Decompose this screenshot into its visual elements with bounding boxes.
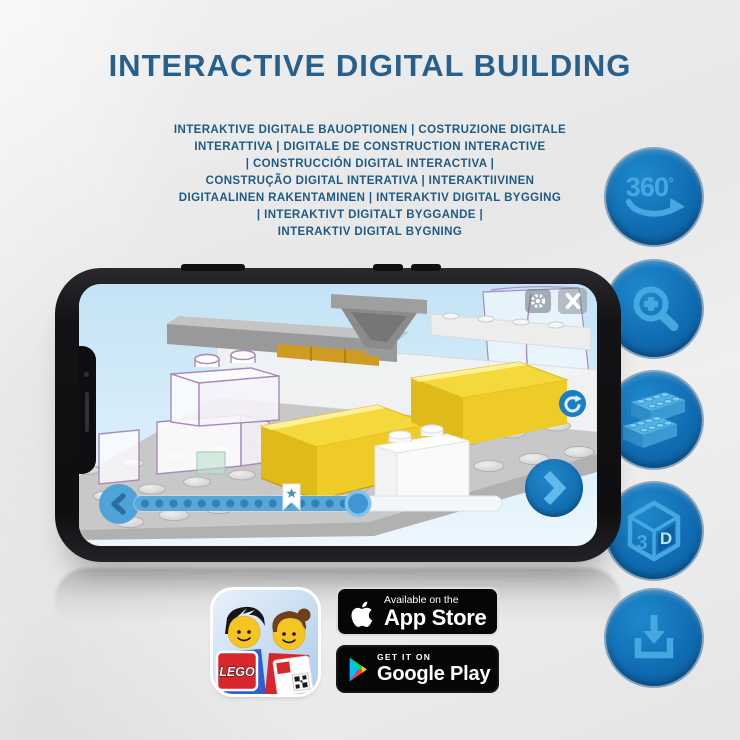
rotate-refresh-icon (562, 393, 583, 414)
phone-volume-down-button (411, 264, 441, 271)
google-play-tagline: GET IT ON (377, 652, 490, 663)
app-store-badge[interactable]: Available on the App Store (336, 587, 499, 636)
google-play-badge[interactable]: GET IT ON Google Play (336, 645, 499, 693)
page-title: INTERACTIVE DIGITAL BUILDING (0, 48, 740, 84)
svg-text:3: 3 (636, 532, 647, 554)
svg-text:D: D (660, 529, 672, 548)
next-step-button[interactable] (525, 459, 583, 517)
svg-text:LEGO: LEGO (219, 665, 255, 679)
app-store-tagline: Available on the (384, 594, 486, 606)
lego-logo: LEGO (217, 652, 257, 690)
earpiece-speaker (85, 392, 89, 432)
close-button[interactable] (558, 288, 587, 314)
lego-app-icon[interactable]: LEGO (213, 590, 318, 694)
build-progress-slider[interactable] (129, 480, 507, 526)
gear-icon (527, 290, 549, 312)
phone-mockup (55, 268, 621, 562)
feature-download (606, 590, 702, 686)
front-camera (84, 372, 89, 377)
apple-logo-icon (349, 597, 375, 627)
poster: INTERACTIVE DIGITAL BUILDING INTERAKTIVE… (0, 0, 740, 740)
lego-app-artwork: LEGO (213, 590, 318, 694)
subtitle-languages: INTERAKTIVE DIGITALE BAUOPTIONEN | COSTR… (100, 122, 640, 241)
slider-thumb[interactable] (345, 490, 372, 517)
reset-rotation-button[interactable] (559, 390, 586, 417)
3d-cube-icon: 3 D (622, 499, 686, 563)
chevron-right-icon (525, 459, 583, 517)
phone-power-button (181, 264, 245, 271)
zoom-in-icon (624, 279, 684, 339)
download-icon (626, 610, 682, 666)
phone-notch (79, 346, 96, 474)
close-icon (562, 291, 584, 311)
google-play-name: Google Play (377, 663, 490, 686)
app-screen (79, 284, 597, 546)
app-store-name: App Store (384, 606, 486, 630)
phone-volume-up-button (373, 264, 403, 271)
settings-button[interactable] (525, 289, 551, 313)
google-play-logo-icon (349, 657, 368, 682)
lego-bricks-icon (621, 390, 687, 450)
